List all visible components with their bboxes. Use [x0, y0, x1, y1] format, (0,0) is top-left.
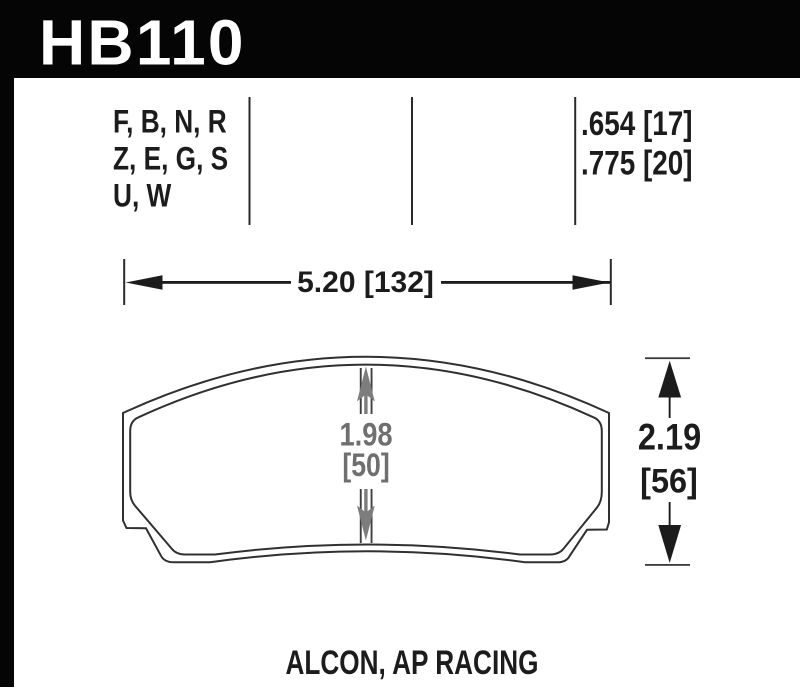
- svg-text:U, W: U, W: [113, 179, 172, 214]
- svg-text:.775 [20]: .775 [20]: [581, 144, 693, 182]
- svg-text:[56]: [56]: [640, 463, 698, 501]
- svg-text:Z, E, G, S: Z, E, G, S: [113, 142, 228, 177]
- svg-text:5.20 [132]: 5.20 [132]: [297, 266, 434, 299]
- svg-text:.654 [17]: .654 [17]: [581, 104, 693, 142]
- svg-text:ALCON, AP RACING: ALCON, AP RACING: [286, 645, 539, 682]
- svg-text:F, B, N, R: F, B, N, R: [113, 105, 227, 140]
- svg-text:2.19: 2.19: [638, 417, 701, 458]
- svg-text:[50]: [50]: [342, 448, 389, 484]
- svg-text:HB110: HB110: [39, 7, 246, 79]
